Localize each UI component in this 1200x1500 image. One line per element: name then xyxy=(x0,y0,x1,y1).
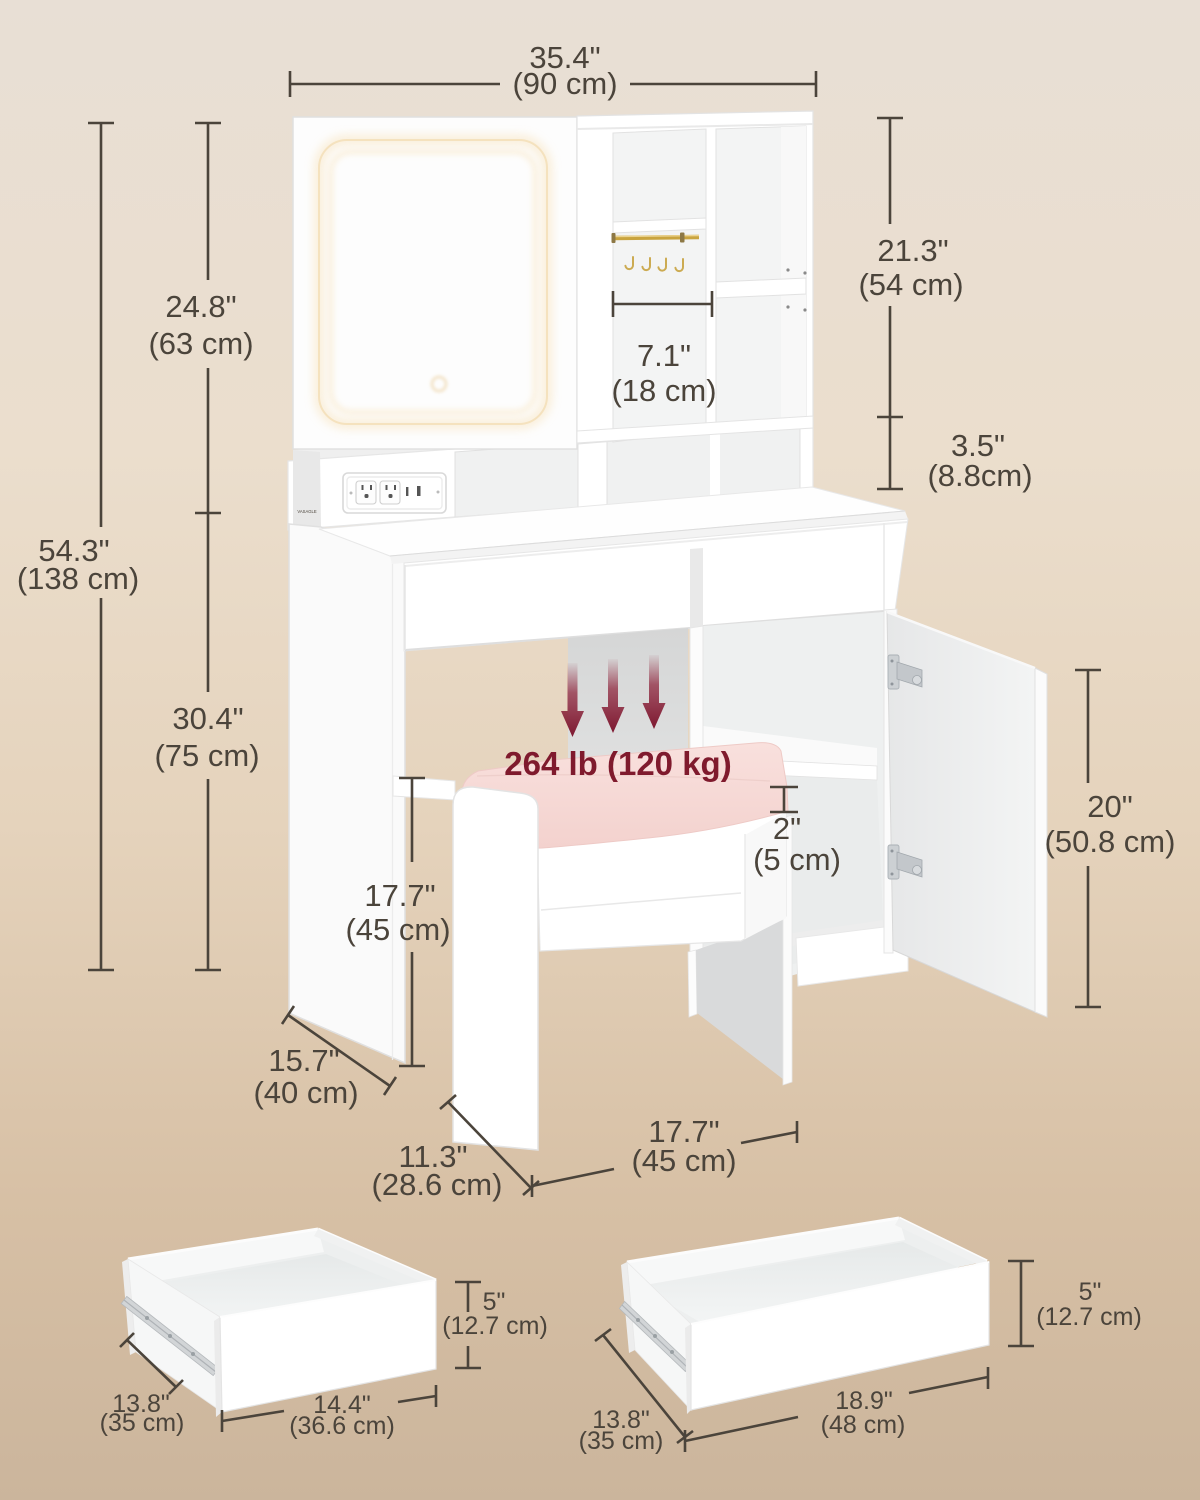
svg-text:(35 cm): (35 cm) xyxy=(100,1409,185,1437)
svg-text:20": 20" xyxy=(1087,789,1133,824)
svg-text:(5 cm): (5 cm) xyxy=(753,842,841,877)
svg-text:(28.6 cm): (28.6 cm) xyxy=(372,1167,503,1202)
svg-text:15.7": 15.7" xyxy=(268,1043,339,1078)
svg-text:(50.8 cm): (50.8 cm) xyxy=(1045,824,1176,859)
svg-text:2": 2" xyxy=(773,811,801,846)
svg-text:VASAGLE: VASAGLE xyxy=(297,509,316,514)
svg-text:30.4": 30.4" xyxy=(172,701,243,736)
svg-text:(45 cm): (45 cm) xyxy=(631,1143,736,1178)
svg-text:264 lb (120 kg): 264 lb (120 kg) xyxy=(504,745,731,782)
svg-text:7.1": 7.1" xyxy=(637,338,691,373)
svg-text:(18 cm): (18 cm) xyxy=(611,373,716,408)
svg-text:(35 cm): (35 cm) xyxy=(579,1427,664,1455)
svg-text:(40 cm): (40 cm) xyxy=(253,1075,358,1110)
svg-text:(54 cm): (54 cm) xyxy=(858,267,963,302)
svg-text:17.7": 17.7" xyxy=(364,878,435,913)
svg-text:(36.6 cm): (36.6 cm) xyxy=(289,1412,395,1440)
svg-text:(12.7 cm): (12.7 cm) xyxy=(1036,1303,1142,1331)
svg-text:5": 5" xyxy=(1079,1278,1102,1306)
svg-text:(8.8cm): (8.8cm) xyxy=(927,458,1032,493)
svg-text:(75 cm): (75 cm) xyxy=(154,738,259,773)
svg-text:(45 cm): (45 cm) xyxy=(345,912,450,947)
svg-text:(63 cm): (63 cm) xyxy=(148,326,253,361)
svg-text:24.8": 24.8" xyxy=(165,289,236,324)
svg-text:21.3": 21.3" xyxy=(877,233,948,268)
svg-text:(138 cm): (138 cm) xyxy=(17,561,139,596)
svg-text:(12.7 cm): (12.7 cm) xyxy=(442,1312,548,1340)
svg-text:(90 cm): (90 cm) xyxy=(512,66,617,101)
svg-text:(48 cm): (48 cm) xyxy=(821,1411,906,1439)
